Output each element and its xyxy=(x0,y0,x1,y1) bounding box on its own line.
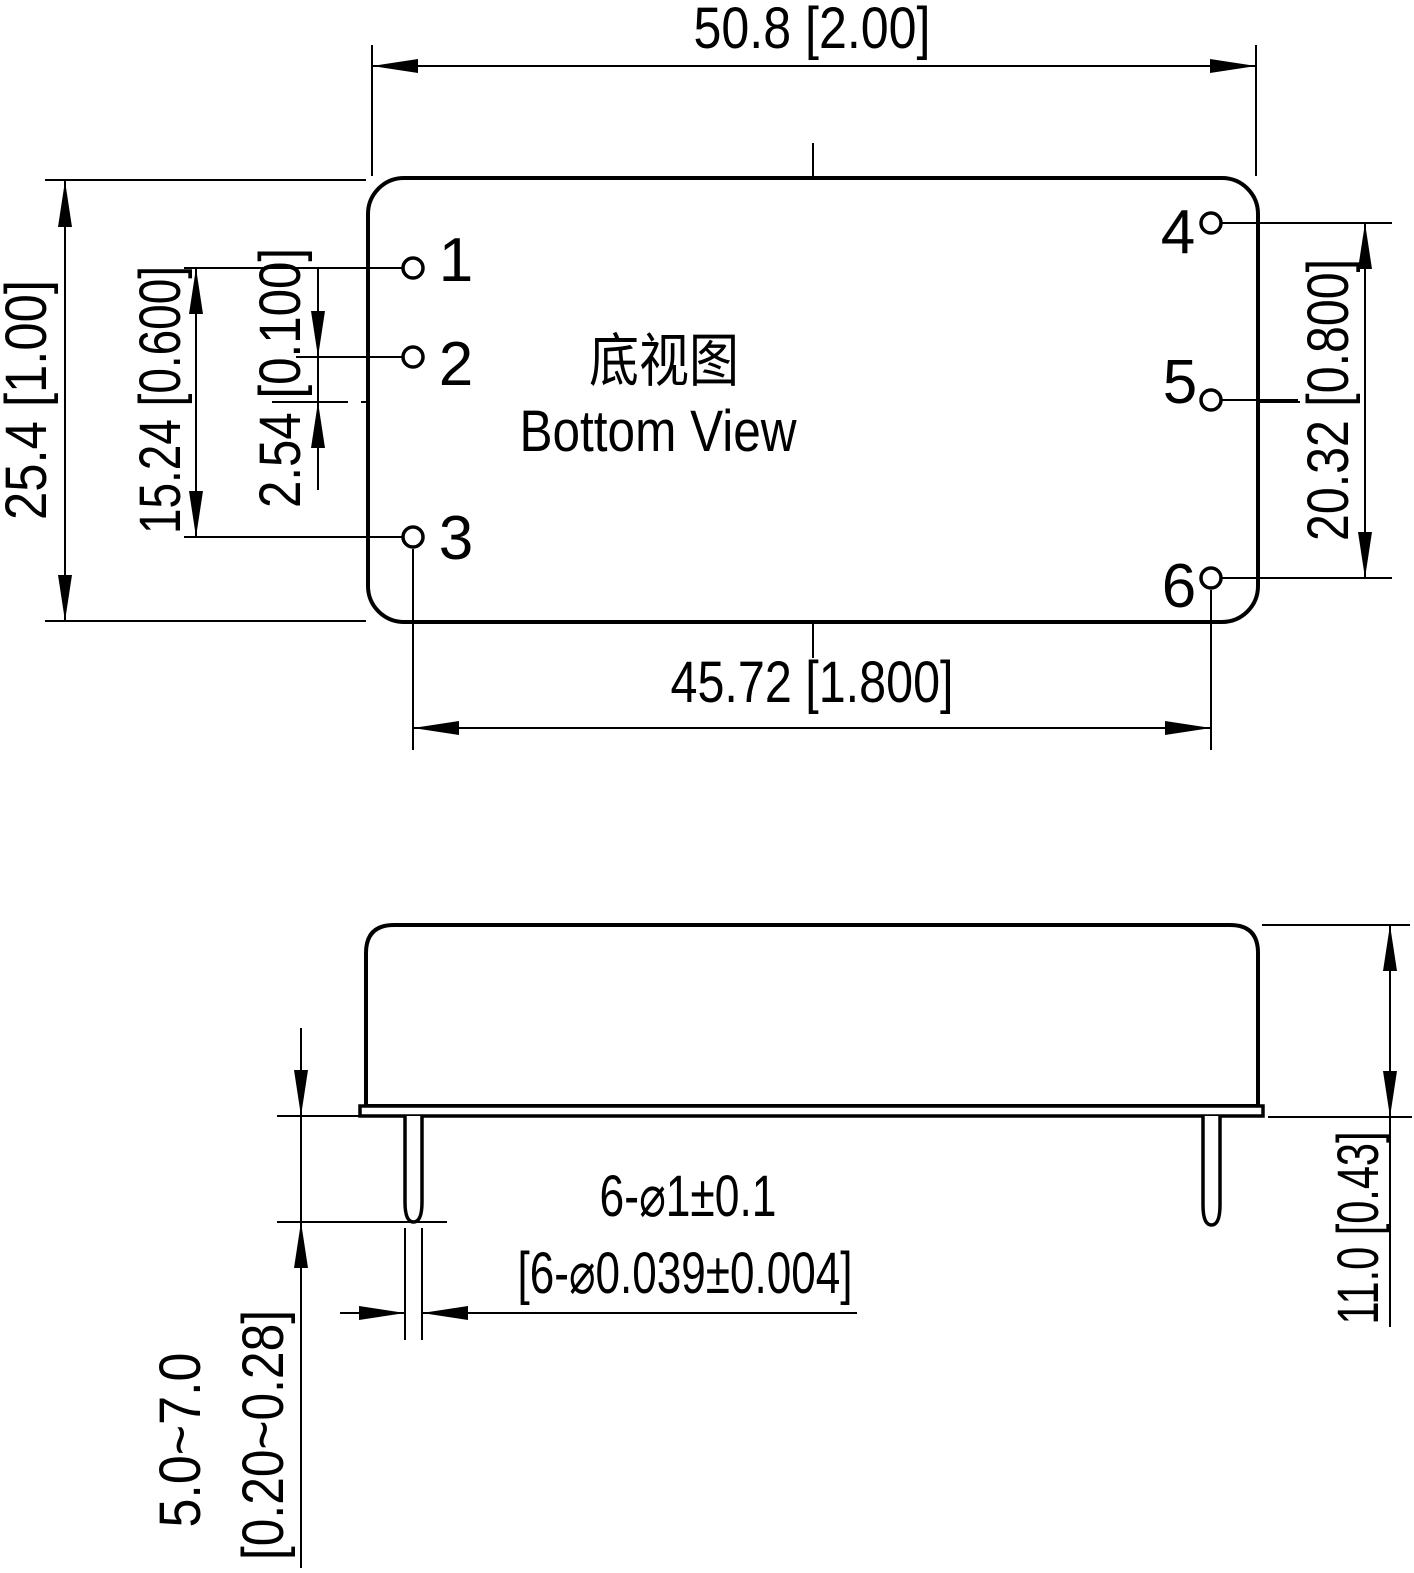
dim-pin-span-46-text: 20.32 [0.800] xyxy=(1296,259,1361,541)
arrow-left-icon xyxy=(413,721,459,735)
dim-pin-length-in-text: [0.20~0.28] xyxy=(231,1310,296,1560)
pin-6-hole xyxy=(1201,568,1221,588)
dim-pin-span-135-text: 15.24 [0.600] xyxy=(128,266,193,534)
view-title-english: Bottom View xyxy=(520,399,798,464)
arrow-right-icon xyxy=(1210,59,1256,73)
arrow-down-icon xyxy=(58,575,72,621)
arrow-up-icon xyxy=(294,1222,308,1268)
side-view: 11.0 [0.43] 5.0~7.0 [0.20~0.28] 6-⌀1±0.1… xyxy=(148,925,1412,1568)
arrow-down-icon xyxy=(294,1070,308,1116)
pin-1-hole xyxy=(403,258,423,278)
arrow-down-icon xyxy=(1383,1071,1397,1117)
dim-pin-span-135: 15.24 [0.600] xyxy=(128,266,203,537)
pin-1-label: 1 xyxy=(439,226,473,295)
arrow-up-icon xyxy=(311,402,325,448)
dim-pin-offset-center: 2.54 [0.100] xyxy=(248,248,325,508)
dim-pin-diameter-mm-text: 6-⌀1±0.1 xyxy=(600,1164,777,1229)
dim-pin-span-46: 20.32 [0.800] xyxy=(1296,223,1372,578)
pin-5-label: 5 xyxy=(1163,348,1197,417)
dim-overall-width-text: 50.8 [2.00] xyxy=(694,0,931,61)
pin-2-hole xyxy=(403,347,423,367)
side-base-plate xyxy=(360,1106,1263,1116)
dim-pin-column-span-text: 45.72 [1.800] xyxy=(671,650,954,715)
side-left-pin xyxy=(405,1116,422,1222)
pin-6-label: 6 xyxy=(1162,552,1196,621)
drawing-sheet: 1 2 3 4 5 6 底视图 Bottom View 50.8 [2.00] … xyxy=(0,0,1414,1573)
arrow-down-icon xyxy=(311,311,325,357)
pin-2-label: 2 xyxy=(439,330,473,399)
pin-4-hole xyxy=(1201,213,1221,233)
arrow-left-icon xyxy=(372,59,418,73)
bottom-view: 1 2 3 4 5 6 底视图 Bottom View 50.8 [2.00] … xyxy=(0,0,1392,750)
arrow-up-icon xyxy=(58,181,72,227)
dim-body-height-text: 11.0 [0.43] xyxy=(1326,1132,1391,1325)
pin-3-hole xyxy=(403,527,423,547)
view-title-chinese: 底视图 xyxy=(589,329,739,394)
module-body-outline xyxy=(368,178,1258,622)
arrow-right-icon xyxy=(359,1306,405,1320)
dim-pin-offset-text: 2.54 [0.100] xyxy=(248,248,313,508)
dim-pin-length-mm-text: 5.0~7.0 xyxy=(148,1353,213,1528)
arrow-left-icon xyxy=(422,1306,468,1320)
dim-body-height: 11.0 [0.43] xyxy=(1262,925,1412,1327)
package-dimension-drawing: 1 2 3 4 5 6 底视图 Bottom View 50.8 [2.00] … xyxy=(0,0,1414,1573)
dim-pin-diameter-in-text: [6-⌀0.039±0.004] xyxy=(518,1241,853,1306)
dim-overall-depth-text: 25.4 [1.00] xyxy=(0,280,59,520)
pin-5-hole xyxy=(1201,390,1221,410)
side-right-pin xyxy=(1203,1116,1220,1225)
arrow-up-icon xyxy=(1383,925,1397,971)
side-body-outline xyxy=(366,925,1258,1106)
arrow-right-icon xyxy=(1165,721,1211,735)
pin-4-label: 4 xyxy=(1161,198,1195,267)
pin-3-label: 3 xyxy=(439,504,473,573)
